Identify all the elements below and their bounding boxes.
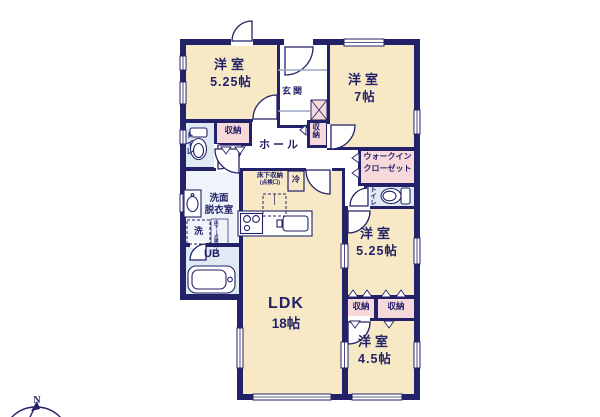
room-name: 洋室: [337, 72, 393, 89]
label-closet-bottom-left: 収納: [345, 301, 377, 312]
label-closet-top: 収納: [215, 125, 251, 136]
room-size: 4.5帖: [343, 351, 407, 367]
room-name: LDK: [249, 294, 323, 315]
label-toilet-1: トイレ: [184, 131, 194, 155]
label-bedroom-bottom-right: 洋室 4.5帖: [343, 334, 407, 367]
room-name: 洋室: [343, 334, 407, 351]
label-unit-bath: UB: [194, 247, 230, 261]
label-washing-machine: 洗: [190, 226, 207, 238]
room-name: 洋室: [345, 226, 409, 243]
room-name: 洋室: [196, 57, 266, 74]
storage-line1: 床下収納: [247, 172, 293, 180]
label-entrance: 玄関: [277, 86, 309, 98]
label-underfloor-hatch: 床下(点検口): [213, 220, 220, 245]
washroom-line2: 脱衣室: [198, 205, 240, 217]
label-washroom: 洗面 脱衣室: [198, 193, 240, 217]
label-bedroom-mid-right: 洋室 5.25帖: [345, 226, 409, 259]
label-compass-north: N: [30, 394, 44, 407]
room-size: 7帖: [337, 89, 393, 105]
shoe-cabinet: [311, 100, 327, 120]
bathtub-icon: [188, 266, 235, 293]
floor-plan: 洋室 5.25帖 玄関 洋室 7帖 収納 トイレ ホール 収納 ウォークイン ク…: [0, 0, 600, 417]
label-closet-bottom-right: 収納: [375, 301, 417, 312]
label-bedroom-top-right: 洋室 7帖: [337, 72, 393, 105]
label-closet-hall: 収納: [311, 123, 321, 138]
wic-line2: クローゼット: [360, 163, 415, 175]
label-hall: ホール: [240, 138, 320, 152]
label-walk-in-closet: ウォークイン クローゼット: [360, 151, 415, 174]
room-size: 18帖: [249, 315, 323, 333]
label-ldk: LDK 18帖: [249, 294, 323, 332]
room-size: 5.25帖: [345, 243, 409, 259]
room-size: 5.25帖: [196, 74, 266, 90]
plan-symbols: [0, 0, 600, 417]
label-refrigerator: 冷: [288, 175, 304, 185]
label-toilet-2: トイレ: [367, 186, 375, 206]
kitchen-counter-icon: [238, 211, 312, 236]
storage-line2: (点検口): [247, 180, 293, 187]
label-bedroom-top-left: 洋室 5.25帖: [196, 57, 266, 90]
washroom-line1: 洗面: [198, 193, 240, 205]
wic-line1: ウォークイン: [360, 151, 415, 163]
toilet-icon-2: [381, 188, 410, 204]
label-underfloor-storage: 床下収納 (点検口): [247, 172, 293, 186]
